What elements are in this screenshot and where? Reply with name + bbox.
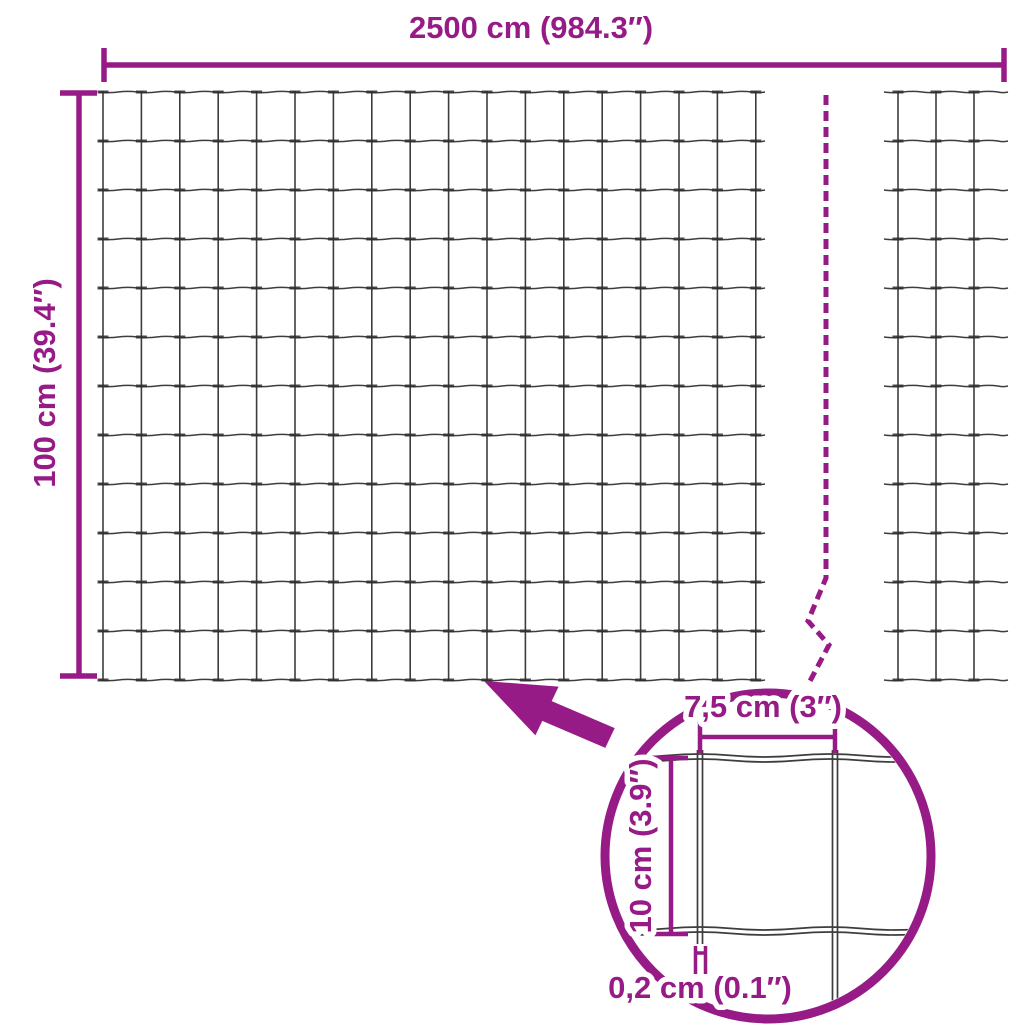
fence-dimension-diagram: 2500 cm (984.3″) 100 cm (39.4″) xyxy=(0,0,1024,1024)
cell-width-dimension xyxy=(700,721,835,753)
cell-height-label: 10 cm (3.9″) xyxy=(623,758,658,933)
cell-height-dimension xyxy=(654,758,688,934)
left-dimension: 100 cm (39.4″) xyxy=(27,93,97,676)
cell-width-label: 7,5 cm (3″) xyxy=(684,689,842,724)
wire-thickness-label: 0,2 cm (0.1″) xyxy=(608,970,792,1005)
right-mesh-panel xyxy=(884,91,1008,682)
zoom-arrow-icon xyxy=(484,681,615,748)
main-mesh-panel xyxy=(98,91,766,682)
top-dimension: 2500 cm (984.3″) xyxy=(104,10,1004,82)
break-line xyxy=(808,95,829,683)
total-width-label: 2500 cm (984.3″) xyxy=(409,10,653,45)
detail-circle: 7,5 cm (3″) 10 cm (3.9″) 0,2 cm (0.1″) xyxy=(602,689,934,1019)
total-height-label: 100 cm (39.4″) xyxy=(27,278,62,488)
